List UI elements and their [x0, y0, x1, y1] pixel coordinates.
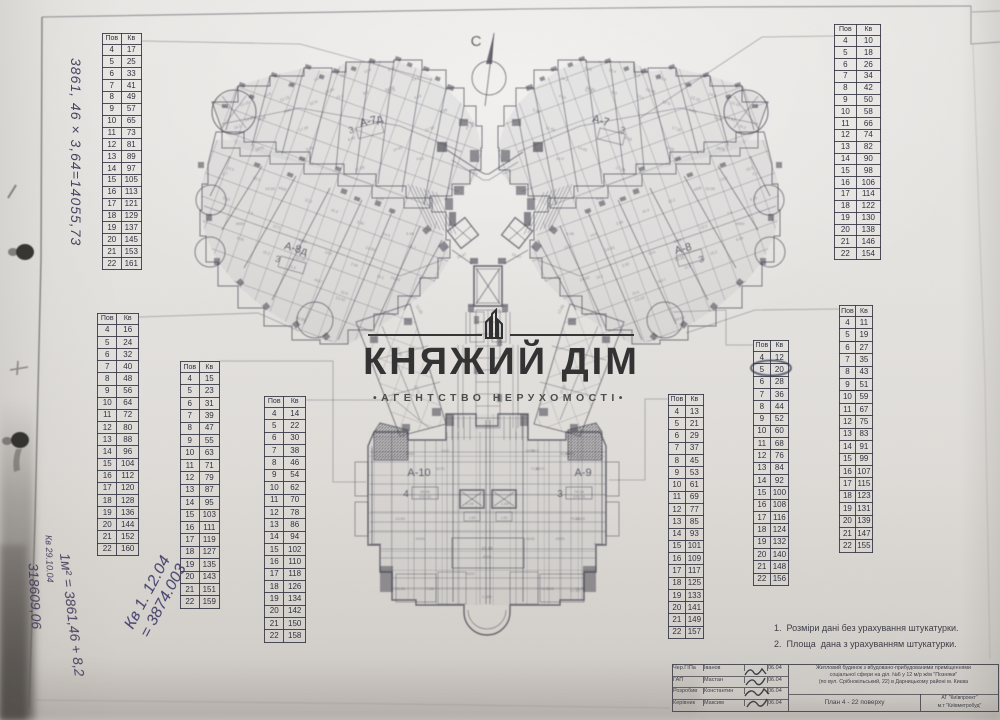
- svg-text:1.65: 1.65: [501, 516, 508, 520]
- svg-text:15.55: 15.55: [265, 186, 276, 191]
- svg-text:4480: 4480: [406, 451, 416, 456]
- svg-text:4: 4: [403, 489, 409, 500]
- svg-text:14.0: 14.0: [441, 448, 450, 453]
- svg-text:1.65: 1.65: [469, 516, 476, 520]
- svg-text:15.40: 15.40: [575, 586, 586, 591]
- svg-text:3: 3: [557, 489, 563, 500]
- svg-text:3270: 3270: [536, 466, 546, 471]
- svg-text:1.980: 1.980: [482, 594, 493, 599]
- svg-text:14.0: 14.0: [416, 156, 425, 161]
- svg-text:13.65: 13.65: [395, 516, 406, 521]
- svg-text:5.98: 5.98: [406, 231, 415, 236]
- svg-text:4480: 4480: [566, 451, 576, 456]
- svg-text:4200: 4200: [466, 571, 476, 576]
- svg-text:С: С: [471, 33, 482, 50]
- svg-text:7.68: 7.68: [546, 586, 555, 591]
- svg-text:16.47: 16.47: [456, 251, 468, 259]
- svg-text:А-10: А-10: [407, 467, 430, 479]
- svg-text:132.42: 132.42: [419, 494, 432, 499]
- svg-text:8.05: 8.05: [596, 196, 605, 201]
- svg-text:5.98: 5.98: [566, 231, 575, 236]
- svg-text:1.65: 1.65: [466, 501, 475, 506]
- svg-text:105.06: 105.06: [573, 494, 586, 499]
- svg-text:4393: 4393: [416, 536, 426, 541]
- svg-text:13.65: 13.65: [556, 303, 566, 315]
- svg-text:15.55: 15.55: [705, 186, 716, 191]
- svg-text:15.40: 15.40: [395, 586, 406, 591]
- svg-text:1.65: 1.65: [501, 501, 510, 506]
- svg-text:13.65: 13.65: [575, 516, 586, 521]
- svg-text:4550: 4550: [236, 221, 246, 226]
- svg-text:4393: 4393: [556, 536, 566, 541]
- svg-text:7.68: 7.68: [426, 586, 435, 591]
- svg-text:13.65: 13.65: [415, 304, 425, 316]
- svg-text:3270: 3270: [436, 466, 446, 471]
- svg-text:А-9: А-9: [574, 467, 591, 479]
- svg-text:1.7: 1.7: [752, 171, 758, 176]
- svg-text:8.05: 8.05: [376, 196, 385, 201]
- svg-text:1.7: 1.7: [222, 171, 228, 176]
- svg-text:4545: 4545: [526, 536, 536, 541]
- svg-text:14.0: 14.0: [531, 448, 540, 453]
- svg-text:14.0: 14.0: [556, 156, 565, 161]
- svg-text:4200: 4200: [483, 554, 493, 559]
- svg-text:4550: 4550: [736, 221, 746, 226]
- svg-text:23.38: 23.38: [481, 546, 493, 551]
